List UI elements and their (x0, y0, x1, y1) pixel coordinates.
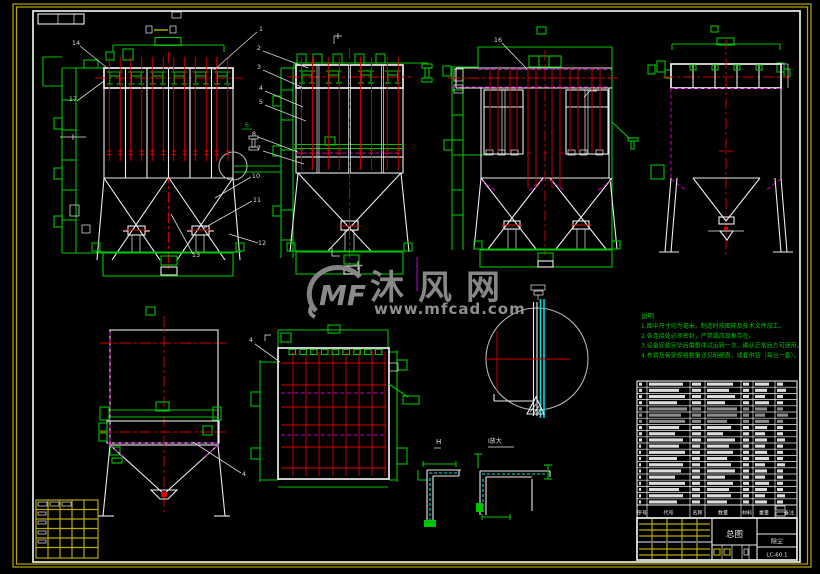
bom-cell-text (743, 457, 749, 460)
bom-cell-text (649, 414, 681, 417)
bom-cell-text (707, 438, 735, 441)
detail-left-label: H (436, 438, 441, 446)
leader-line (263, 70, 306, 89)
bom-cell-text (743, 438, 749, 441)
bom-cell-text (707, 414, 737, 417)
bom-cell-text (707, 401, 725, 404)
bom-cell-text (649, 426, 679, 429)
bom-cell-text (649, 420, 685, 423)
notes-line: 1.图中尺寸均为毫米，制造时按图样及技术文件加工。 (641, 322, 785, 330)
callout-number: 16 (494, 36, 502, 44)
bom-header: 序号 (637, 510, 647, 517)
bom-cell-text (777, 414, 788, 417)
bom-cell-text (777, 432, 783, 435)
bom-cell-text (639, 432, 642, 435)
bom-cell-text (777, 482, 783, 485)
bom-cell-text (743, 476, 749, 479)
bom-cell-text (743, 420, 749, 423)
leader-line (214, 32, 257, 70)
bom-cell-text (692, 420, 701, 423)
notes-title: 说明 (641, 311, 655, 320)
bom-cell-text (692, 500, 700, 503)
bom-cell-text (639, 476, 641, 479)
bom-cell-text (639, 426, 642, 429)
bom-cell-text (707, 469, 735, 472)
watermark-url: www.mfcad.com (374, 300, 526, 318)
bom-cell-text (692, 445, 700, 448)
callout-number: 4 (259, 84, 263, 92)
bom-cell-text (649, 407, 687, 410)
bom-cell-text (743, 488, 749, 491)
bom-cell-text (649, 463, 683, 466)
bom-cell-text (743, 469, 749, 472)
bom-cell-text (692, 407, 701, 410)
bom-cell-text (639, 420, 642, 423)
bom-cell-text (777, 383, 783, 386)
bom-cell-text (707, 407, 737, 410)
bom-cell-text (777, 389, 786, 392)
zone-marker (172, 12, 181, 18)
notes-line: 2.各连接处必须密封，严禁漏风现象存在。 (641, 332, 755, 340)
bom-cell-text (777, 457, 783, 460)
technical-notes: 说明1.图中尺寸均为毫米，制造时按图样及技术文件加工。2.各连接处必须密封，严禁… (641, 311, 803, 359)
bom-cell-text (692, 463, 700, 466)
cad-drawing-sheet: H Ⅰ放大 (0, 0, 820, 574)
bom-cell-text (692, 451, 700, 454)
bom-cell-text (707, 451, 733, 454)
view-front-elevation-bays (107, 57, 231, 178)
bom-cell-text (755, 488, 767, 491)
bom-cell-text (755, 457, 769, 460)
bom-header: 备注 (784, 510, 794, 517)
bom-header: 重量 (759, 510, 769, 517)
view-rear-elevation (443, 27, 638, 267)
callout-number: 8 (252, 130, 256, 138)
callout-number: 2 (257, 44, 261, 52)
callout-number: 4 (249, 336, 253, 344)
bom-cell-text (649, 438, 683, 441)
bom-cell-text (692, 401, 701, 404)
callout-number: 13 (192, 251, 200, 259)
bom-cell-text (692, 389, 701, 392)
bom-cell-text (692, 488, 700, 491)
bom-cell-text (639, 407, 642, 410)
bom-cell-text (755, 407, 767, 410)
drawing-number: LC-60.1 (766, 553, 787, 559)
bom-cell-text (639, 463, 641, 466)
bom-cell-text (777, 488, 783, 491)
bom-cell-text (755, 414, 765, 417)
bom-cell-text (707, 389, 729, 392)
bom-cell-text (755, 432, 765, 435)
bom-cell-text (649, 401, 677, 404)
bom-cell-text (777, 476, 783, 479)
bom-cell-text (639, 488, 641, 491)
bom-cell-text (755, 395, 765, 398)
bom-cell-text (743, 426, 749, 429)
bom-cell-text (649, 500, 677, 503)
leader-line (265, 91, 303, 107)
detail-angle-right: Ⅰ放大 (474, 437, 552, 520)
notes-line: 4.布袋及骨架规格数量详见明细表，成套供货（每台一套）。 (641, 351, 800, 359)
bom-cell-text (649, 469, 681, 472)
bom-cell-text (649, 457, 677, 460)
bom-cell-text (639, 451, 641, 454)
bom-cell-text (649, 476, 675, 479)
bom-cell-text (707, 420, 727, 423)
bom-cell-text (755, 438, 767, 441)
zone-tab (38, 14, 84, 24)
section-mark-view1 (146, 26, 176, 33)
bom-cell-text (639, 469, 641, 472)
bom-cell-text (707, 445, 729, 448)
detail-angle-left: H (423, 438, 461, 527)
bom-cell-text (743, 482, 749, 485)
bom-cell-text (743, 389, 749, 392)
bom-cell-text (755, 482, 769, 485)
bom-cell-text (692, 383, 701, 386)
bom-cell-text (707, 500, 727, 503)
bom-cell-text (743, 500, 749, 503)
bom-cell-text (692, 395, 701, 398)
bom-cell-text (743, 395, 749, 398)
view-plan-grid (281, 350, 386, 477)
callout-number: 1 (259, 25, 263, 33)
bom-cell-text (707, 457, 727, 460)
bom-cell-text (755, 445, 765, 448)
callout-number: 14 (72, 39, 80, 47)
bom-cell-text (743, 451, 749, 454)
bom-cell-text (743, 407, 749, 410)
bom-cell-text (639, 482, 641, 485)
bom-cell-text (692, 432, 701, 435)
bom-cell-text (692, 438, 701, 441)
bom-header: 名称 (692, 510, 702, 517)
callout-number: 12 (258, 239, 266, 247)
leader-line (171, 214, 193, 254)
cad-canvas: H Ⅰ放大 (0, 0, 820, 574)
notes-line: 3.设备安装完毕后需整体试运转一次，确认正常后方可使用。 (641, 342, 803, 350)
watermark: MF 沐风网 www.mfcad.com (309, 257, 525, 318)
bom-cell-text (707, 432, 723, 435)
bom-cell-text (707, 383, 733, 386)
leader-line (204, 201, 252, 228)
bom-cell-text (755, 469, 767, 472)
bom-cell-text (639, 383, 642, 386)
bom-cell-text (755, 383, 769, 386)
bom-cell-text (755, 401, 769, 404)
bom-cell-text (692, 476, 700, 479)
bom-cell-text (649, 482, 685, 485)
bom-cell-text (692, 426, 701, 429)
bom-cell-text (707, 482, 733, 485)
bom-cell-text (707, 395, 735, 398)
bom-cell-text (777, 401, 783, 404)
bom-cell-text (639, 395, 642, 398)
bom-cell-text (639, 494, 641, 497)
bom-cell-text (692, 457, 700, 460)
callout-number: 5 (259, 98, 263, 106)
callout-number: 3 (257, 63, 261, 71)
bom-cell-text (777, 494, 785, 497)
callout-number: 17 (69, 95, 77, 103)
detail-right-label: Ⅰ放大 (488, 437, 502, 445)
bom-cell-text (649, 488, 679, 491)
bom-cell-text (755, 500, 767, 503)
binding-block (36, 500, 98, 558)
bom-cell-text (777, 463, 785, 466)
leader-line (265, 105, 306, 121)
bom-cell-text (639, 445, 641, 448)
bom-cell-text (639, 500, 641, 503)
bom-cell-text (639, 401, 642, 404)
callout-number: 7 (257, 144, 261, 152)
bom-cell-text (692, 482, 700, 485)
callout-number: 10 (252, 172, 260, 180)
bom-cell-text (707, 494, 731, 497)
bom-header: 代号 (663, 510, 673, 517)
view-plan (251, 325, 428, 487)
bom-cell-text (649, 383, 683, 386)
callout-number: 6 (245, 121, 249, 129)
bom-cell-text (777, 395, 783, 398)
bom-header: 数量 (718, 510, 728, 517)
drawing-title: 总图 (726, 529, 743, 540)
bom-cell-text (707, 463, 731, 466)
bom-cell-text (707, 476, 725, 479)
view-side-elevation-b (648, 26, 793, 258)
bom-cell-text (639, 438, 642, 441)
product-name: 除尘 (771, 538, 783, 546)
bom-cell-text (692, 414, 701, 417)
bom-cell-text (649, 445, 679, 448)
bom-cell-text (743, 383, 749, 386)
leader-flag (265, 335, 271, 341)
bom-cell-text (755, 476, 765, 479)
bom-cell-text (777, 407, 783, 410)
bom-cell-text (649, 389, 679, 392)
bom-cell-text (692, 469, 700, 472)
bom-cell-text (639, 457, 641, 460)
bom-cell-text (777, 451, 783, 454)
bom-cell-text (755, 494, 765, 497)
callout-number: 4 (242, 470, 246, 478)
bom-cell-text (639, 389, 642, 392)
view-front-elevation (43, 38, 281, 277)
view-side-conveyor (98, 307, 230, 516)
bom-cell-text (743, 463, 749, 466)
bom-cell-text (755, 426, 767, 429)
title-block-signature-grid (639, 519, 710, 559)
bom-cell-text (743, 494, 749, 497)
leader-line (77, 81, 104, 101)
bom-cell-text (777, 420, 783, 423)
bom-cell-text (755, 389, 767, 392)
leader-line (229, 234, 258, 243)
bom-cell-text (755, 420, 769, 423)
callout-number: 11 (253, 196, 261, 204)
bom-table: 序号代号名称数量材料重量备注 (637, 381, 797, 518)
bom-cell-text (639, 414, 642, 417)
bom-cell-text (649, 432, 675, 435)
bom-cell-text (707, 426, 731, 429)
bom-cell-text (743, 445, 749, 448)
bom-cell-text (777, 500, 783, 503)
bom-cell-text (755, 451, 767, 454)
watermark-logo: MF (319, 279, 366, 312)
leader-line (255, 344, 280, 362)
bom-cell-text (743, 432, 749, 435)
bom-cell-text (649, 395, 685, 398)
leader-line (258, 137, 298, 152)
bom-cell-text (777, 445, 783, 448)
bom-cell-text (755, 463, 765, 466)
bom-cell-text (649, 494, 683, 497)
bom-cell-text (692, 494, 700, 497)
bom-cell-text (743, 401, 749, 404)
bom-header: 材料 (742, 510, 752, 517)
bom-cell-text (707, 488, 729, 491)
bom-cell-text (777, 426, 783, 429)
bom-cell-text (649, 451, 685, 454)
bom-cell-text (743, 414, 749, 417)
leader-flag (584, 91, 597, 97)
bom-cell-text (777, 438, 785, 441)
bom-cell-text (777, 469, 783, 472)
